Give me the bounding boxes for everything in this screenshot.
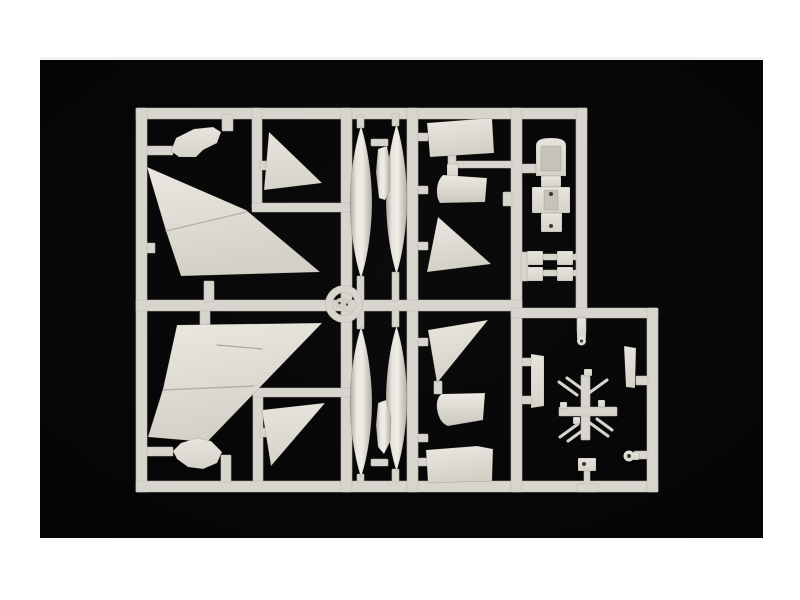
part-cockpit-waist <box>541 176 561 187</box>
part-cross-nub-3 <box>598 400 605 407</box>
runner-bar-pylon-2 <box>522 396 532 404</box>
part-equipment-square-3 <box>557 251 573 265</box>
part-tank-pylon-upper <box>376 146 390 200</box>
part-cockpit-tail <box>541 213 562 232</box>
runner-bar-fairing-left-bottom <box>147 447 173 456</box>
runner-nub-intake-right <box>503 192 512 206</box>
runner-bar-squares-right-2 <box>573 270 577 276</box>
part-gear-strut <box>624 346 636 388</box>
runner-stub-tank4-bottom <box>392 469 399 482</box>
part-fuselage-panel-upper <box>427 118 494 157</box>
part-ring-speck-2 <box>346 303 348 305</box>
part-ring-speck-1 <box>338 302 341 305</box>
runner-bar-tanks-top <box>371 139 388 146</box>
runner-tab-wing-top <box>204 281 214 302</box>
runner-cell-bottomright-top <box>511 308 658 318</box>
part-gear-leg <box>577 318 586 339</box>
runner-bar-fairing-left-top <box>147 146 173 155</box>
runner-cell-topright-right <box>576 108 587 313</box>
runner-tab-tri-topright <box>418 242 428 250</box>
part-cross-nub-1 <box>584 369 592 376</box>
part-cross-nub-4 <box>573 417 580 424</box>
runner-stub-panel-top <box>418 133 428 141</box>
part-gear-leg-hub <box>580 340 583 343</box>
part-cross-nub-2 <box>560 402 567 409</box>
part-fuselage-panel-lower <box>426 446 493 483</box>
runner-stem-nosegear <box>584 470 590 485</box>
runner-stub-tri-cowl-bottom <box>434 381 442 394</box>
part-equipment-square-2 <box>527 267 543 281</box>
runner-cross-horizontal <box>559 407 617 416</box>
part-cockpit-tub-inner-top <box>541 146 561 171</box>
runner-tab-tri-bottomright <box>418 338 428 346</box>
part-equipment-square-4 <box>557 267 573 281</box>
part-cockpit-dot-1 <box>549 192 553 196</box>
part-wheel-hub <box>627 454 631 458</box>
runner-sub-topleft-horizontal <box>252 203 351 212</box>
runner-foot-nosegear <box>577 484 598 492</box>
part-nose-gear-bracket <box>578 458 596 471</box>
runner-bar-pylon-1 <box>522 358 532 366</box>
runner-bar-squares-mid-1 <box>543 254 557 260</box>
runner-stub-tank4-top <box>392 310 399 327</box>
part-equipment-square-1 <box>527 251 543 265</box>
runner-stub-cowling-bottom <box>418 434 428 442</box>
runner-bar-squares-right-1 <box>573 254 577 260</box>
runner-nub-left-top <box>147 243 155 253</box>
runner-stub-tank2-bottom <box>392 272 399 301</box>
runner-stub-cowling-top <box>418 186 428 194</box>
runner-stub-fairing-top <box>222 114 233 131</box>
runner-stub-tank1-top <box>357 115 364 128</box>
sprue-svg <box>40 60 763 538</box>
runner-cell-bottomright-right <box>647 308 658 492</box>
runner-sub-bottomleft-horizontal <box>253 388 351 397</box>
part-store-pylon <box>531 354 544 408</box>
part-cockpit-dot-2 <box>549 224 553 228</box>
runner-bar-squares-mid-2 <box>543 270 557 276</box>
product-photo <box>40 57 763 538</box>
part-ring-blob <box>335 298 351 309</box>
part-intake-cowl-lower <box>437 393 485 426</box>
runner-sub-topleft-vertical <box>252 108 262 208</box>
runner-bar-fairing-elbow-bottom <box>221 455 231 482</box>
runner-stub-tank2-top <box>392 113 399 126</box>
runner-bar-strut <box>636 376 648 385</box>
page: { "page": { "background": "#ffffff" }, "… <box>0 0 800 600</box>
runner-bar-cockpit <box>522 164 536 173</box>
runner-bar-bracket-top <box>456 161 512 168</box>
part-nose-gear-dot <box>582 462 586 466</box>
part-intake-cowl-upper <box>437 175 487 203</box>
part-bracket-upper <box>447 164 458 177</box>
runner-bar-tanks-bottom <box>371 459 388 466</box>
